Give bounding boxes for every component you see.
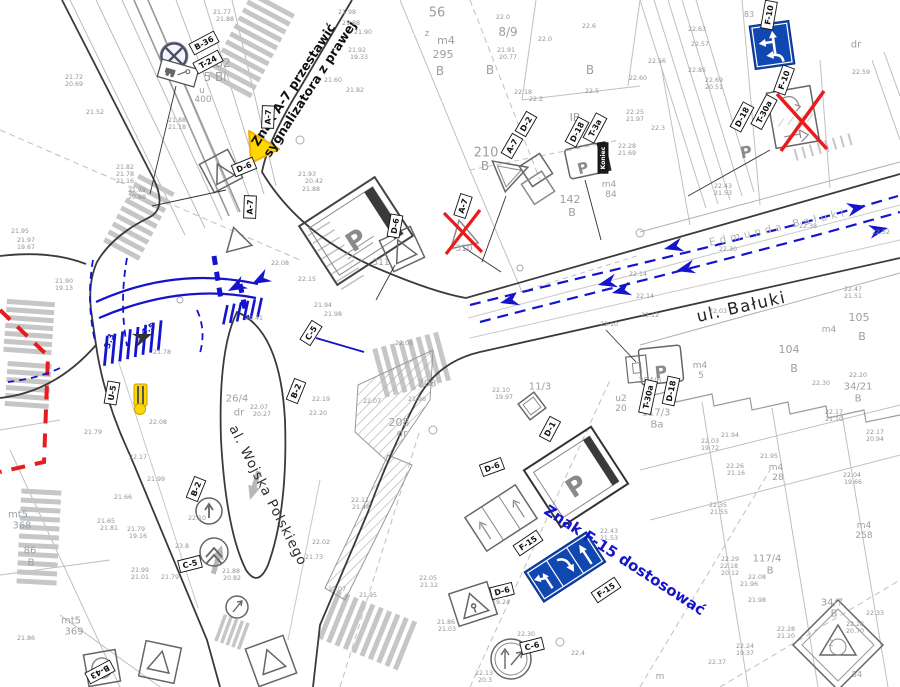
elevation-label: 22.47 <box>844 286 862 293</box>
elevation-label: 22.30 <box>517 631 535 638</box>
svg-text:22.43: 22.43 <box>714 183 732 190</box>
parcel-label: 34/21 <box>844 382 873 393</box>
elevation-label: 21.95 <box>11 228 29 235</box>
svg-text:21.96: 21.96 <box>408 396 426 403</box>
elevation-label: 19.13 <box>55 285 73 292</box>
elevation-label: 21.69 <box>618 150 636 157</box>
elevation-label: 20.70 <box>846 628 864 635</box>
svg-text:A-7: A-7 <box>246 199 256 214</box>
svg-text:21.52: 21.52 <box>86 109 104 116</box>
parcel-label: 258 <box>855 531 872 541</box>
elevation-label: 22.17 <box>825 409 843 416</box>
elevation-label: 21.53 <box>714 190 732 197</box>
svg-text:21.94: 21.94 <box>314 302 332 309</box>
elevation-label: 22.13 <box>475 670 493 677</box>
elevation-label: 22.26 <box>726 463 744 470</box>
svg-text:21.88: 21.88 <box>216 16 234 23</box>
svg-text:21.86: 21.86 <box>17 635 35 642</box>
parcel-label: 311 <box>372 258 389 268</box>
svg-text:83: 83 <box>744 10 754 19</box>
parcel-label: B <box>481 159 489 173</box>
elevation-label: 21.03 <box>438 626 456 633</box>
svg-text:22.38: 22.38 <box>799 223 817 230</box>
svg-text:22.59: 22.59 <box>852 69 870 76</box>
svg-text:22.04: 22.04 <box>843 472 861 479</box>
elevation-label: 21.82 <box>346 87 364 94</box>
svg-text:208: 208 <box>417 379 436 390</box>
elevation-label: 19.16 <box>129 533 147 540</box>
elevation-label: 22.30 <box>812 380 830 387</box>
svg-text:B: B <box>855 394 862 405</box>
svg-text:B: B <box>790 362 798 375</box>
svg-text:22.18: 22.18 <box>514 89 532 96</box>
svg-text:21.55: 21.55 <box>710 509 728 516</box>
svg-text:104: 104 <box>779 343 800 356</box>
svg-text:19.33: 19.33 <box>350 54 368 61</box>
svg-text:5 Bi: 5 Bi <box>203 70 226 84</box>
svg-text:22.30: 22.30 <box>517 631 535 638</box>
svg-text:22.05: 22.05 <box>419 575 437 582</box>
svg-text:20: 20 <box>615 404 627 414</box>
svg-text:B: B <box>436 64 444 78</box>
svg-text:21.51: 21.51 <box>844 293 862 300</box>
parcel-label: B <box>767 566 774 577</box>
elevation-label: 20.51 <box>705 84 723 91</box>
svg-text:20.82: 20.82 <box>223 575 241 582</box>
svg-text:21.65: 21.65 <box>97 518 115 525</box>
svg-text:8/9: 8/9 <box>498 25 517 39</box>
elevation-label: 20.42 <box>305 178 323 185</box>
svg-text:22.14: 22.14 <box>629 271 647 278</box>
parcel-label: 84 <box>605 190 617 200</box>
svg-text:22.14: 22.14 <box>636 293 654 300</box>
parcel-label: mt5 <box>8 510 28 521</box>
elevation-label: 22.57 <box>691 41 709 48</box>
svg-text:m4: m4 <box>769 463 784 473</box>
svg-text:22.85: 22.85 <box>688 67 706 74</box>
elevation-label: 21.60 <box>324 77 342 84</box>
elevation-label: 21.79 <box>161 574 179 581</box>
svg-text:Koniec: Koniec <box>600 146 607 169</box>
elevation-label: 20.88 <box>128 194 146 201</box>
parcel-label: B <box>586 63 594 77</box>
elevation-label: 21.99 <box>147 476 165 483</box>
elevation-label: 22.17 <box>866 429 884 436</box>
svg-text:21.93: 21.93 <box>298 171 316 178</box>
svg-text:208: 208 <box>389 416 410 429</box>
yellow-u5-bollard <box>134 384 147 415</box>
parcel-label: 2 <box>828 639 834 649</box>
svg-text:20.42: 20.42 <box>305 178 323 185</box>
elevation-label: 21.98 <box>338 9 356 16</box>
svg-text:21.82: 21.82 <box>116 164 134 171</box>
svg-text:21.69: 21.69 <box>618 150 636 157</box>
svg-text:22.07: 22.07 <box>328 586 346 593</box>
elevation-label: 22.20 <box>849 372 867 379</box>
elevation-label: 21.16 <box>116 178 134 185</box>
elevation-label: 21.10 <box>825 416 843 423</box>
elevation-label: 21.88 <box>302 186 320 193</box>
svg-text:310: 310 <box>455 244 472 254</box>
parcel-label: 54 <box>852 670 862 679</box>
elevation-label: 21.94 <box>314 302 332 309</box>
svg-text:20.70: 20.70 <box>846 628 864 635</box>
svg-text:2: 2 <box>828 639 834 649</box>
svg-text:B: B <box>831 609 838 620</box>
parcel-label: m4 <box>693 361 708 371</box>
sign-code-label-a-7: A-7 <box>244 196 257 219</box>
svg-text:B: B <box>767 566 774 577</box>
svg-text:22.03: 22.03 <box>701 438 719 445</box>
svg-text:21.81: 21.81 <box>100 525 118 532</box>
svg-text:20.88: 20.88 <box>128 194 146 201</box>
svg-text:21.53: 21.53 <box>714 190 732 197</box>
elevation-label: 22.19 <box>312 396 330 403</box>
svg-text:A-7: A-7 <box>264 109 274 124</box>
svg-text:5: 5 <box>698 371 704 381</box>
svg-text:22.15: 22.15 <box>298 276 316 283</box>
svg-text:22.3: 22.3 <box>651 125 665 132</box>
elevation-label: 22.24 <box>736 643 754 650</box>
svg-text:21.12: 21.12 <box>420 582 438 589</box>
svg-text:m4: m4 <box>822 325 837 335</box>
elevation-label: 21.98 <box>748 597 766 604</box>
parcel-label: 368 <box>12 521 31 532</box>
elevation-label: 20.69 <box>65 81 83 88</box>
svg-text:22.30: 22.30 <box>812 380 830 387</box>
svg-text:56: 56 <box>429 6 446 21</box>
svg-text:21.99: 21.99 <box>131 567 149 574</box>
svg-text:22.12: 22.12 <box>641 312 659 319</box>
svg-text:21.95: 21.95 <box>760 453 778 460</box>
svg-text:311: 311 <box>372 258 389 268</box>
svg-text:20.27: 20.27 <box>253 411 271 418</box>
parcel-label: 5 <box>698 371 704 381</box>
svg-text:22.56: 22.56 <box>648 58 666 65</box>
parcel-label: 5 Bi <box>203 70 226 84</box>
svg-text:22.10: 22.10 <box>492 387 510 394</box>
svg-text:22.20: 22.20 <box>309 410 327 417</box>
elevation-label: 19.72 <box>701 445 719 452</box>
svg-text:21.10: 21.10 <box>825 416 843 423</box>
elevation-label: 22.05 <box>419 575 437 582</box>
svg-text:22.24: 22.24 <box>736 643 754 650</box>
elevation-label: 22.11 <box>351 497 369 504</box>
svg-text:21.82: 21.82 <box>346 87 364 94</box>
elevation-label: 22.43 <box>600 528 618 535</box>
parcel-label: 208 <box>417 379 436 390</box>
svg-text:m: m <box>656 672 665 682</box>
svg-text:B: B <box>486 63 494 77</box>
elevation-label: 21.79 <box>128 187 146 194</box>
elevation-label: 22.28 <box>618 143 636 150</box>
svg-text:295: 295 <box>433 48 454 61</box>
elevation-label: 21.97 <box>626 116 644 123</box>
elevation-label: 22.10 <box>492 387 510 394</box>
elevation-label: 21.93 <box>298 171 316 178</box>
elevation-label: 21.95 <box>760 453 778 460</box>
svg-text:22.17: 22.17 <box>825 409 843 416</box>
svg-text:u2: u2 <box>615 394 626 404</box>
svg-text:mt5: mt5 <box>61 616 81 627</box>
elevation-label: 22.33 <box>866 610 884 617</box>
svg-text:21.66: 21.66 <box>114 494 132 501</box>
parcel-label: 105 <box>849 311 870 324</box>
svg-text:22.13: 22.13 <box>475 670 493 677</box>
elevation-label: 21.96 <box>408 396 426 403</box>
parcel-label: B <box>855 394 862 405</box>
svg-text:21.01: 21.01 <box>131 574 149 581</box>
svg-text:21.77: 21.77 <box>213 9 231 16</box>
svg-text:22.19: 22.19 <box>312 396 330 403</box>
elevation-label: 22.14 <box>636 293 654 300</box>
svg-text:21.98: 21.98 <box>324 311 342 318</box>
svg-text:105: 105 <box>849 311 870 324</box>
elevation-label: 21.96 <box>740 581 758 588</box>
elevation-label: 22.63 <box>688 26 706 33</box>
svg-text:22.25: 22.25 <box>626 109 644 116</box>
elevation-label: 22.03 <box>709 308 727 315</box>
svg-text:54: 54 <box>852 670 862 679</box>
svg-text:mt5: mt5 <box>8 510 28 521</box>
svg-text:22.28: 22.28 <box>846 621 864 628</box>
svg-text:21.79: 21.79 <box>127 526 145 533</box>
svg-text:400: 400 <box>194 95 211 105</box>
svg-text:20.3: 20.3 <box>478 677 492 684</box>
elevation-label: 21.79 <box>127 526 145 533</box>
svg-text:22.10: 22.10 <box>600 321 618 328</box>
svg-text:21.90: 21.90 <box>354 29 372 36</box>
elevation-label: 21.55 <box>710 509 728 516</box>
parcel-label: 117/4 <box>753 554 782 565</box>
svg-text:B: B <box>481 159 489 173</box>
elevation-label: 19.66 <box>844 479 862 486</box>
svg-text:22.37: 22.37 <box>708 659 726 666</box>
elevation-label: 20.3 <box>478 677 492 684</box>
parcel-label: B <box>568 206 576 219</box>
elevation-label: 21.88 <box>342 20 360 27</box>
svg-text:22.08: 22.08 <box>271 260 289 267</box>
elevation-label: 22.14 <box>629 271 647 278</box>
elevation-label: 22.10 <box>600 321 618 328</box>
svg-text:22.17: 22.17 <box>866 429 884 436</box>
svg-text:34/21: 34/21 <box>844 382 873 393</box>
parcel-label: m4 <box>822 325 837 335</box>
svg-text:22.28: 22.28 <box>618 143 636 150</box>
svg-text:21.79: 21.79 <box>128 187 146 194</box>
parcel-label: dr <box>397 429 408 440</box>
svg-text:21.98: 21.98 <box>338 9 356 16</box>
svg-text:dr: dr <box>851 40 862 51</box>
parcel-label: B <box>790 362 798 375</box>
svg-text:19.37: 19.37 <box>736 650 754 657</box>
parcel-label: B <box>436 64 444 78</box>
elevation-label: 21.78 <box>153 349 171 356</box>
svg-text:20.41: 20.41 <box>245 315 263 322</box>
svg-text:86: 86 <box>24 546 37 557</box>
svg-text:21.97: 21.97 <box>626 116 644 123</box>
elevation-label: 21.90 <box>354 29 372 36</box>
parcel-label: 20 <box>615 404 627 414</box>
svg-text:21.88: 21.88 <box>302 186 320 193</box>
svg-text:20.77: 20.77 <box>499 54 517 61</box>
svg-text:19.13: 19.13 <box>55 285 73 292</box>
elevation-label: 19.67 <box>17 244 35 251</box>
parcel-label: 34/7 <box>821 598 843 609</box>
svg-text:21.78: 21.78 <box>153 349 171 356</box>
svg-text:B: B <box>858 330 866 343</box>
svg-text:21.96: 21.96 <box>740 581 758 588</box>
parcel-label: 26/4 <box>226 394 248 405</box>
elevation-label: 22.10 <box>188 515 206 522</box>
svg-text:19.97: 19.97 <box>495 394 513 401</box>
svg-text:34/7: 34/7 <box>821 598 843 609</box>
svg-text:z: z <box>425 29 430 39</box>
svg-text:21.88: 21.88 <box>168 117 186 124</box>
svg-text:21.53: 21.53 <box>600 535 618 542</box>
elevation-label: 22.08 <box>748 574 766 581</box>
svg-text:11/3: 11/3 <box>529 382 551 393</box>
parcel-label: B <box>858 330 866 343</box>
elevation-label: 21.65 <box>97 518 115 525</box>
parcel-label: 56 <box>429 6 446 21</box>
elevation-label: 19.97 <box>495 394 513 401</box>
sign-code-label-koniec: Koniec <box>598 143 608 173</box>
elevation-label: 22.08 <box>149 419 167 426</box>
svg-text:21.20: 21.20 <box>777 633 795 640</box>
elevation-label: 21.51 <box>844 293 862 300</box>
parcel-label: m <box>656 672 665 682</box>
elevation-label: 21.16 <box>727 470 745 477</box>
svg-text:B: B <box>28 558 35 569</box>
svg-text:21.72: 21.72 <box>65 74 83 81</box>
svg-text:28: 28 <box>772 473 784 483</box>
svg-text:21.79: 21.79 <box>161 574 179 581</box>
elevation-label: 23.8 <box>175 543 189 550</box>
elevation-label: 22.4 <box>571 650 585 657</box>
elevation-label: 21.82 <box>116 164 134 171</box>
svg-text:22.0: 22.0 <box>496 14 510 21</box>
parcel-label: B <box>831 609 838 620</box>
svg-text:21.60: 21.60 <box>324 77 342 84</box>
svg-text:21.99: 21.99 <box>147 476 165 483</box>
parcel-label: 28 <box>772 473 784 483</box>
svg-text:20.94: 20.94 <box>866 436 884 443</box>
elevation-label: 22.35 <box>709 502 727 509</box>
elevation-label: 22.56 <box>648 58 666 65</box>
svg-text:21.78: 21.78 <box>116 171 134 178</box>
elevation-label: 22.37 <box>708 659 726 666</box>
svg-text:21.95: 21.95 <box>11 228 29 235</box>
elevation-label: 21.81 <box>100 525 118 532</box>
elevation-label: 20.94 <box>866 436 884 443</box>
svg-text:22.35: 22.35 <box>709 502 727 509</box>
elevation-label: 22.0 <box>496 14 510 21</box>
elevation-label: 21.18 <box>168 124 186 131</box>
elevation-label: 22.08 <box>271 260 289 267</box>
parcel-label: 208 <box>389 416 410 429</box>
svg-text:m4: m4 <box>857 521 872 531</box>
elevation-label: 20.27 <box>253 411 271 418</box>
svg-text:22.03: 22.03 <box>709 308 727 315</box>
elevation-label: 19.37 <box>736 650 754 657</box>
svg-text:22.02: 22.02 <box>312 539 330 546</box>
svg-text:21.18: 21.18 <box>168 124 186 131</box>
elevation-label: 21.88 <box>168 117 186 124</box>
svg-text:23.8: 23.8 <box>175 543 189 550</box>
parcel-label: 310 <box>455 244 472 254</box>
elevation-label: 21.95 <box>359 592 377 599</box>
svg-text:22.2: 22.2 <box>529 96 543 103</box>
svg-text:22.60: 22.60 <box>629 75 647 82</box>
svg-text:21.03: 21.03 <box>438 626 456 633</box>
elevation-label: 21.12 <box>420 582 438 589</box>
svg-text:21.16: 21.16 <box>727 470 745 477</box>
elevation-label: 21.88 <box>222 568 240 575</box>
elevation-label: 21.94 <box>721 432 739 439</box>
elevation-label: 22.69 <box>705 77 723 84</box>
elevation-label: 22.5 <box>585 88 599 95</box>
parcel-label: m4 <box>857 521 872 531</box>
parcel-label: 295 <box>433 48 454 61</box>
svg-text:19.16: 19.16 <box>129 533 147 540</box>
svg-text:22.20: 22.20 <box>849 372 867 379</box>
svg-text:21.73: 21.73 <box>305 554 323 561</box>
elevation-label: 22.07 <box>250 404 268 411</box>
svg-text:22.07: 22.07 <box>363 398 381 405</box>
parcel-label: B <box>28 558 35 569</box>
svg-text:22.17: 22.17 <box>129 454 147 461</box>
elevation-label: 22.30 <box>719 246 737 253</box>
svg-text:22.07: 22.07 <box>250 404 268 411</box>
elevation-label: 22.07 <box>363 398 381 405</box>
sketch-crossed-lane-sign <box>766 86 819 149</box>
elevation-label: 22.85 <box>688 67 706 74</box>
svg-text:258: 258 <box>855 531 872 541</box>
parcel-label: m4 <box>437 34 455 47</box>
svg-text:22.28: 22.28 <box>777 626 795 633</box>
elevation-label: 21.97 <box>17 237 35 244</box>
elevation-label: 22.18 <box>514 89 532 96</box>
elevation-label: 22.60 <box>629 75 647 82</box>
parcel-label: dr <box>851 40 862 51</box>
elevation-label: 20.77 <box>499 54 517 61</box>
elevation-label: 22.07 <box>328 586 346 593</box>
parcel-label: 86 <box>24 546 37 557</box>
svg-text:22.57: 22.57 <box>691 41 709 48</box>
svg-text:19.72: 19.72 <box>701 445 719 452</box>
svg-text:21.16: 21.16 <box>116 178 134 185</box>
svg-text:22.08: 22.08 <box>748 574 766 581</box>
svg-text:22.69: 22.69 <box>705 77 723 84</box>
svg-text:B: B <box>568 206 576 219</box>
svg-text:21.91: 21.91 <box>497 47 515 54</box>
elevation-label: 22.29 <box>721 556 739 563</box>
elevation-label: 22.59 <box>852 69 870 76</box>
svg-text:22.52: 22.52 <box>872 229 890 236</box>
elevation-label: 21.90 <box>55 278 73 285</box>
elevation-label: 22.52 <box>872 229 890 236</box>
traffic-organization-plan: ul. Bałuki Edmunda Bałuki al. Wojska Pol… <box>0 0 900 687</box>
elevation-label: 21.53 <box>600 535 618 542</box>
elevation-label: 20.82 <box>223 575 241 582</box>
svg-text:m4: m4 <box>602 180 617 190</box>
svg-text:84: 84 <box>605 190 617 200</box>
svg-text:P: P <box>654 362 668 383</box>
elevation-label: 21.73 <box>305 554 323 561</box>
svg-text:m4: m4 <box>693 361 708 371</box>
elevation-label: 21.91 <box>497 47 515 54</box>
